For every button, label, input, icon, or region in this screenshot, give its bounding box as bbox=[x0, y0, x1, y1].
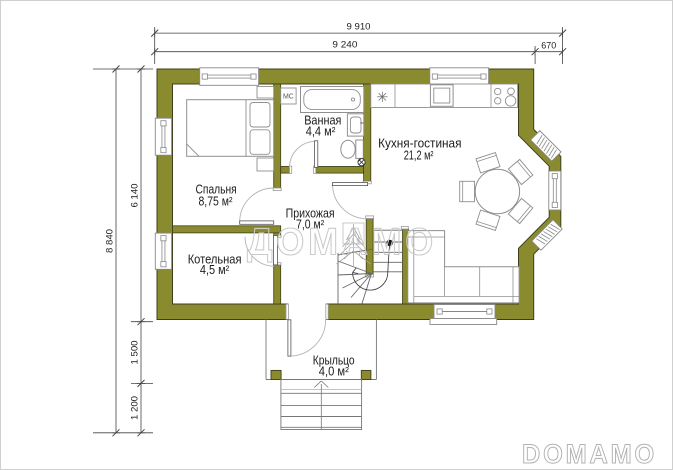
svg-text:8 840: 8 840 bbox=[105, 229, 116, 253]
svg-text:DOMAMO: DOMAMO bbox=[522, 439, 657, 469]
svg-text:МС: МС bbox=[283, 94, 294, 101]
svg-text:9 910: 9 910 bbox=[347, 22, 371, 33]
svg-text:1 500: 1 500 bbox=[130, 341, 141, 365]
svg-text:6 140: 6 140 bbox=[130, 184, 141, 208]
svg-text:8,75 м²: 8,75 м² bbox=[198, 195, 232, 209]
svg-text:9 240: 9 240 bbox=[332, 40, 357, 51]
svg-text:4,4 м²: 4,4 м² bbox=[306, 125, 336, 139]
svg-text:4,5 м²: 4,5 м² bbox=[200, 263, 229, 277]
svg-text:ДОМАМО: ДОМАМО bbox=[247, 222, 437, 264]
svg-text:670: 670 bbox=[541, 41, 556, 52]
svg-text:4,0 м²: 4,0 м² bbox=[319, 365, 349, 379]
svg-text:21,2 м²: 21,2 м² bbox=[404, 149, 434, 163]
svg-text:1 200: 1 200 bbox=[130, 396, 141, 420]
